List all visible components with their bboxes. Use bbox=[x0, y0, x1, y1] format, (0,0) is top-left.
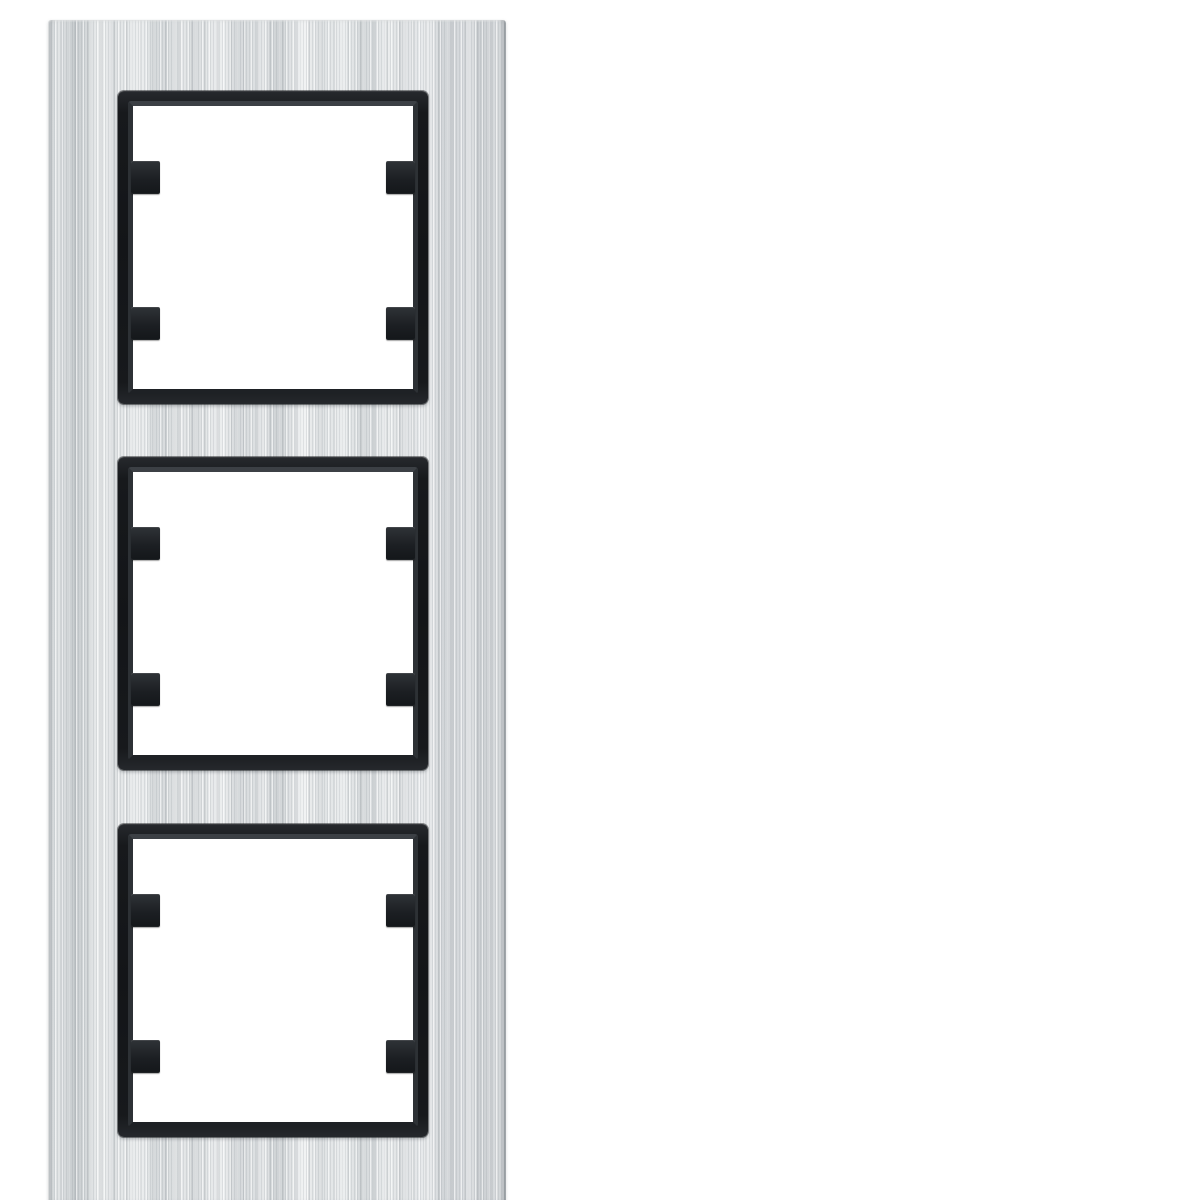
fixing-clip-top-right bbox=[386, 527, 415, 560]
module-window-middle bbox=[128, 467, 418, 760]
frame-module-top bbox=[118, 91, 428, 404]
module-window-bottom bbox=[128, 834, 418, 1127]
fixing-clip-bottom-right bbox=[386, 307, 415, 340]
fixing-clip-top-right bbox=[386, 161, 415, 194]
fixing-clip-top-left bbox=[131, 894, 160, 927]
fixing-clip-bottom-right bbox=[386, 673, 415, 706]
fixing-clip-top-right bbox=[386, 894, 415, 927]
frame-module-bottom bbox=[118, 824, 428, 1137]
fixing-clip-top-left bbox=[131, 527, 160, 560]
fixing-clip-bottom-left bbox=[131, 1040, 160, 1073]
module-window-top bbox=[128, 101, 418, 394]
fixing-clip-bottom-right bbox=[386, 1040, 415, 1073]
switch-frame-plate bbox=[48, 20, 506, 1200]
frame-module-middle bbox=[118, 457, 428, 770]
photo-canvas bbox=[0, 0, 1200, 1200]
fixing-clip-top-left bbox=[131, 161, 160, 194]
fixing-clip-bottom-left bbox=[131, 673, 160, 706]
fixing-clip-bottom-left bbox=[131, 307, 160, 340]
